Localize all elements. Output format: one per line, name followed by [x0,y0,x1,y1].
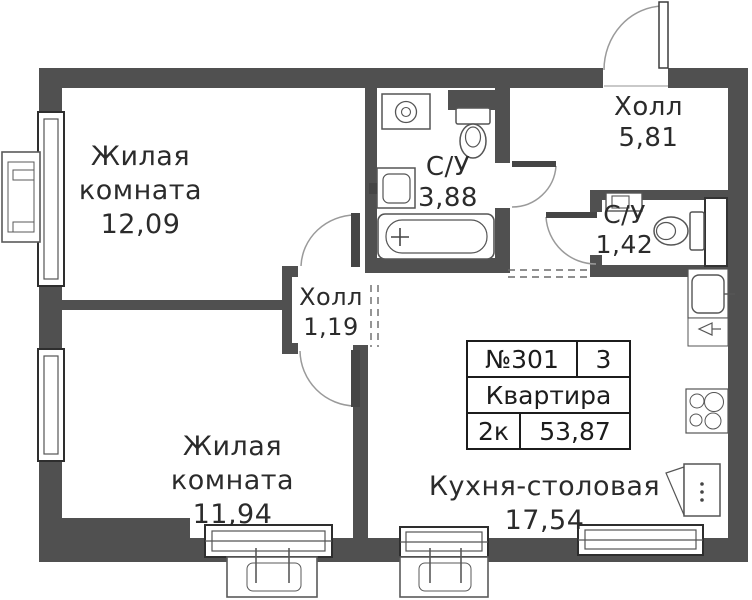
room-area: 12,09 [58,208,223,242]
floor-cell: 3 [578,342,629,376]
room-name: Холл [286,282,376,312]
entrance-door-leaf [659,2,668,68]
kitchen-sink-icon [688,269,735,346]
room-area: 17,54 [412,504,677,538]
room-label-living-1: Жилая комната 12,09 [58,140,223,242]
room-area: 1,42 [582,230,667,260]
room-area: 5,81 [596,123,701,154]
entrance-door-arc [604,6,663,70]
room-name: Кухня-столовая [412,470,677,504]
room-name: Холл [596,92,701,123]
room-name: С/У [582,200,667,230]
ac-unit-left [2,152,40,242]
room-area: 11,94 [150,498,315,532]
info-table-row-1: №301 3 [468,342,629,378]
entrance-door [604,2,668,86]
room-label-hall-small: Холл 1,19 [286,282,376,342]
window-living2-left [38,349,64,461]
stove-icon [686,389,728,433]
room-label-living-2: Жилая комната 11,94 [150,430,315,532]
room-area: 3,88 [398,183,498,214]
washing-machine-icon [382,94,430,129]
total-area-cell: 53,87 [521,414,629,448]
room-name: Жилая комната [150,430,315,498]
toilet-1-icon [456,108,490,158]
room-name: Жилая комната [58,140,223,208]
floorplan: Жилая комната 12,09 Холл 5,81 С/У 3,88 С… [0,0,752,600]
duct-shaft [705,198,727,266]
room-name: С/У [398,152,498,183]
info-table-row-3: 2к 53,87 [468,414,629,448]
apartment-info-table: №301 3 Квартира 2к 53,87 [466,340,631,450]
rooms-count-cell: 2к [468,414,521,448]
info-table-row-2: Квартира [468,378,629,414]
bathtub-icon [378,214,494,259]
type-cell: Квартира [468,378,629,412]
room-area: 1,19 [286,312,376,342]
apartment-number-cell: №301 [468,342,578,376]
room-label-bathroom-1: С/У 3,88 [398,152,498,214]
door-hall-to-living2 [300,350,360,407]
room-label-kitchen: Кухня-столовая 17,54 [412,470,677,538]
room-label-hall-main: Холл 5,81 [596,92,701,154]
dashed-zone-boundaries [371,270,590,347]
door-bathroom-1 [512,164,556,207]
door-hall-to-living1 [301,213,360,267]
room-label-bathroom-2: С/У 1,42 [582,200,667,260]
